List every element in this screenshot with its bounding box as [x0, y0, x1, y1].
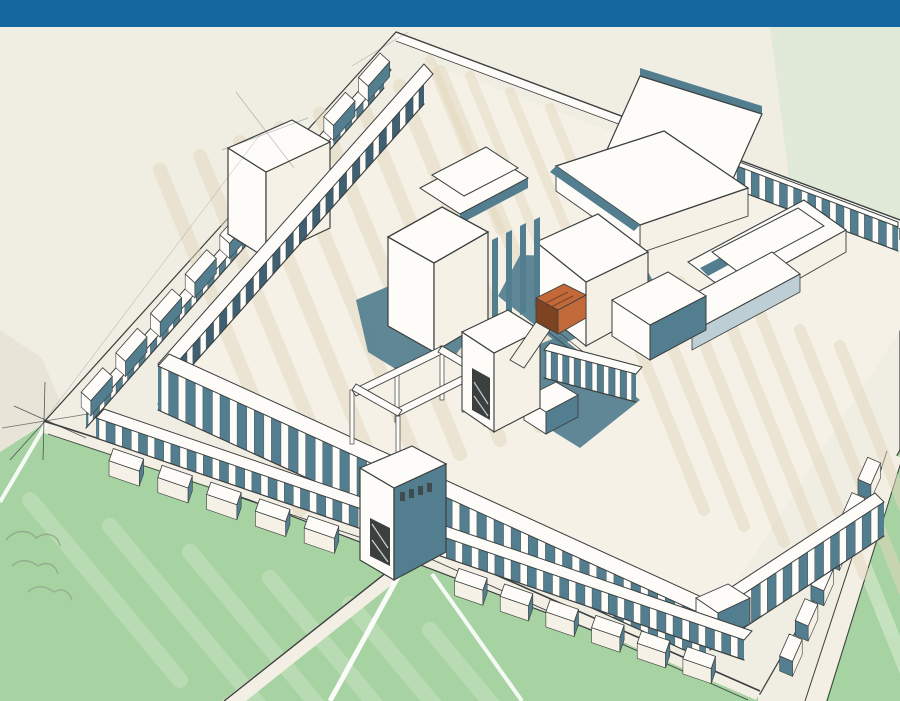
inner-gate-tower	[462, 310, 540, 432]
temple-complex-illustration	[0, 0, 900, 701]
top-banner	[0, 0, 900, 27]
illustration-page	[0, 0, 900, 701]
